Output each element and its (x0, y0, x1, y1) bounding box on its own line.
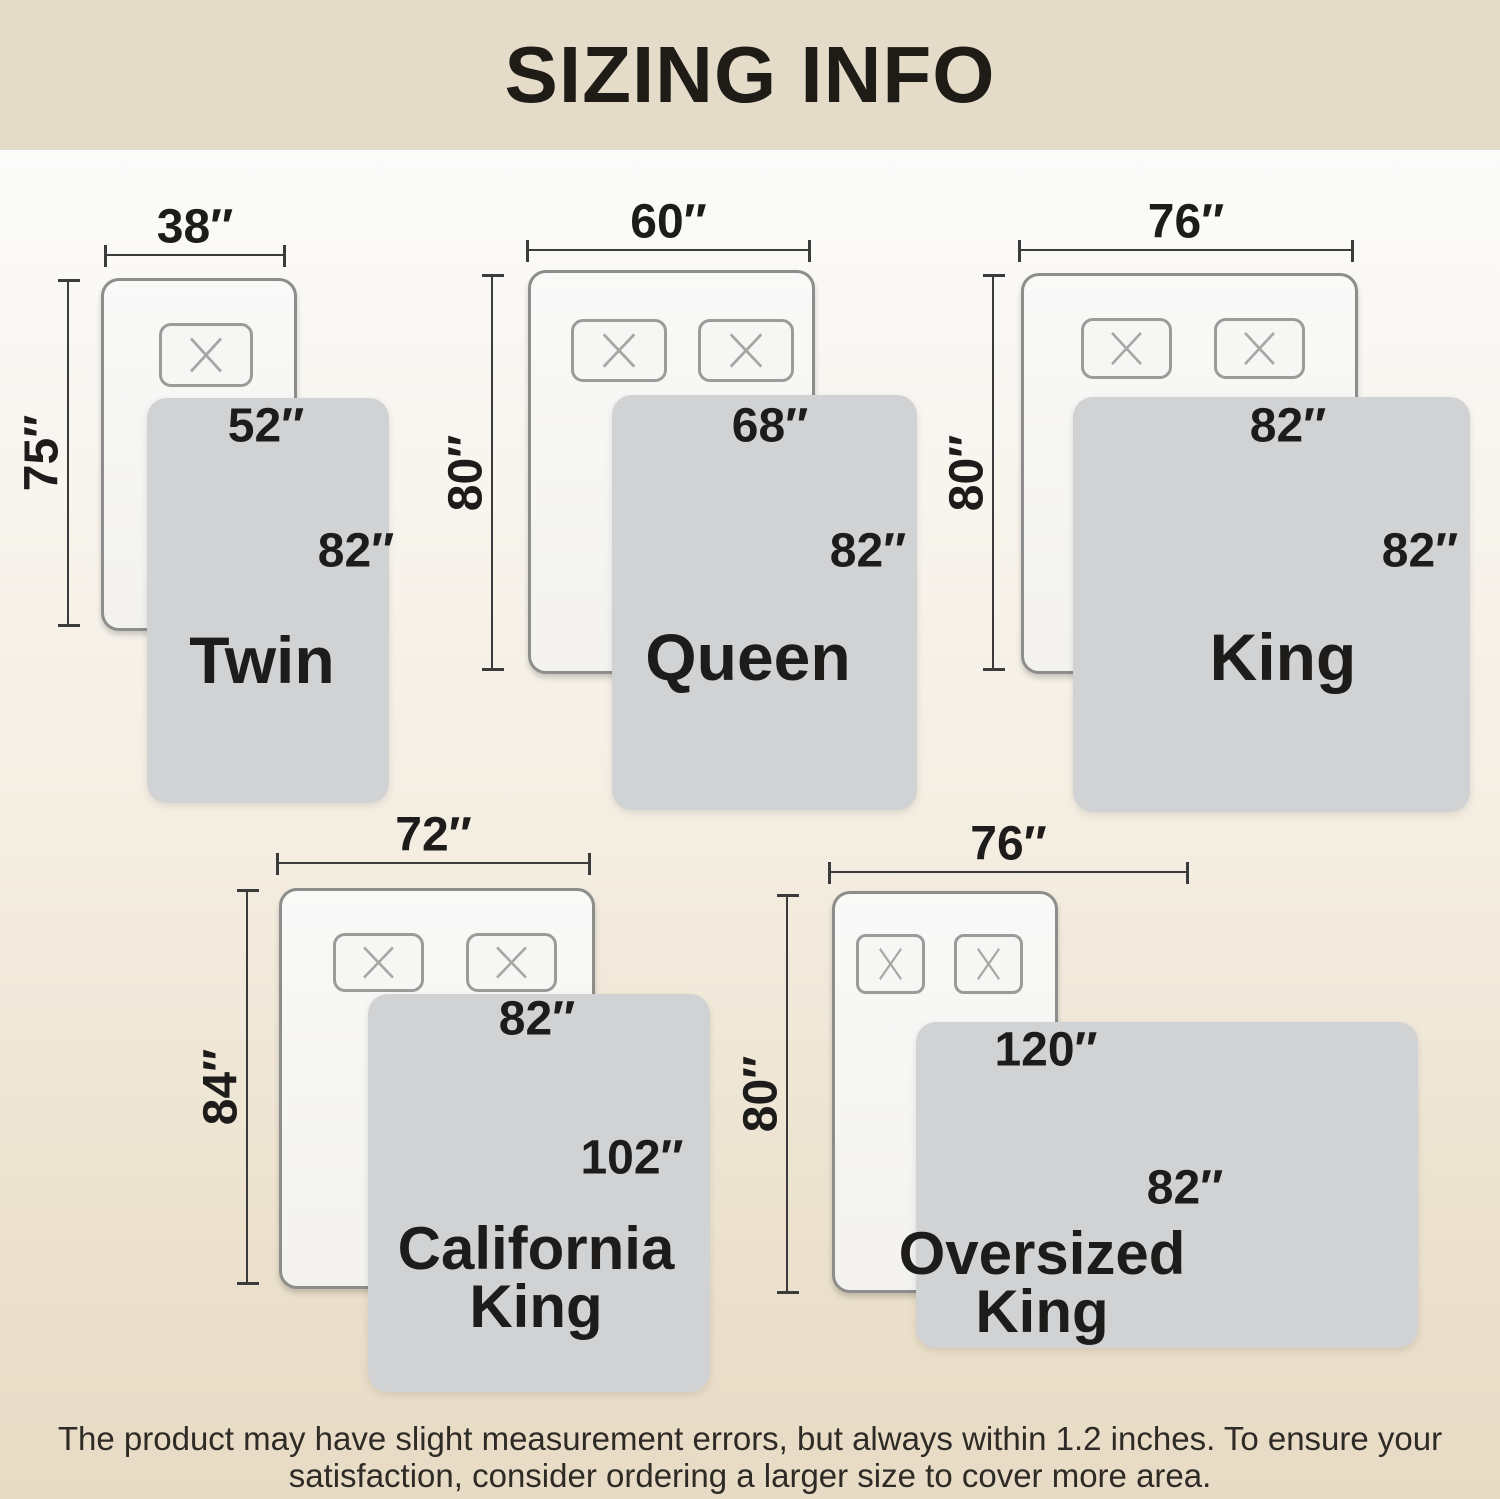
blanket-length-label: 82″ (1147, 1161, 1223, 1216)
pillow-x-icon (336, 936, 421, 989)
bed-width-label: 76″ (1148, 195, 1224, 250)
blanket-name-label: Oversized King (899, 1225, 1186, 1341)
pillow (466, 933, 557, 992)
sizing-infographic: SIZING INFO 52″ 82″ Twin 38″ 75″ (0, 0, 1500, 1499)
blanket-width-label: 68″ (732, 399, 808, 454)
height-dimension-line: 75″ (67, 280, 69, 626)
blanket-name-label: Twin (189, 622, 334, 698)
bed-length-label: 80″ (439, 434, 494, 510)
blanket-width-label: 82″ (1250, 399, 1326, 454)
blanket-length-label: 102″ (580, 1131, 683, 1186)
height-dimension-line: 80″ (786, 895, 788, 1293)
blanket-name-line2: King (899, 1283, 1186, 1341)
width-dimension-line: 76″ (829, 871, 1188, 873)
pillow-x-icon (1084, 321, 1169, 376)
pillow-x-icon (701, 322, 791, 379)
blanket-length-label: 82″ (1382, 524, 1458, 579)
blanket-name-label: California King (398, 1220, 675, 1336)
pillow-x-icon (1217, 321, 1302, 376)
blanket: 82″ 102″ California King (368, 994, 710, 1392)
height-dimension-line: 80″ (992, 275, 994, 670)
blanket-name-line2: King (398, 1278, 675, 1336)
height-dimension-line: 84″ (246, 890, 248, 1284)
pillow (571, 319, 667, 382)
pillow (159, 323, 253, 387)
page-title: SIZING INFO (505, 29, 996, 121)
bed-width-label: 38″ (157, 200, 233, 255)
footer-note-line2: satisfaction, consider ordering a larger… (0, 1457, 1500, 1494)
blanket-width-label: 120″ (994, 1023, 1097, 1078)
blanket: 68″ 82″ Queen (612, 395, 917, 810)
pillow-x-icon (574, 322, 664, 379)
bed-length-label: 75″ (15, 415, 70, 491)
blanket: 52″ 82″ Twin (147, 398, 389, 803)
footer-note-line1: The product may have slight measurement … (0, 1420, 1500, 1457)
blanket-length-label: 82″ (318, 524, 394, 579)
bed-length-label: 84″ (194, 1049, 249, 1125)
pillow (954, 934, 1023, 994)
blanket-width-label: 82″ (499, 992, 575, 1047)
pillow (856, 934, 925, 994)
width-dimension-line: 76″ (1019, 249, 1353, 251)
pillow-x-icon (469, 936, 554, 989)
blanket: 120″ 82″ Oversized King (916, 1022, 1418, 1348)
pillow (1081, 318, 1172, 379)
pillow (698, 319, 794, 382)
pillow-x-icon (162, 326, 250, 384)
pillow-x-icon (859, 937, 922, 991)
width-dimension-line: 38″ (105, 254, 285, 256)
blanket-width-label: 52″ (228, 399, 304, 454)
bed-length-label: 80″ (734, 1056, 789, 1132)
height-dimension-line: 80″ (491, 275, 493, 670)
width-dimension-line: 60″ (527, 249, 810, 251)
bed-length-label: 80″ (940, 434, 995, 510)
width-dimension-line: 72″ (277, 862, 590, 864)
blanket-name-line1: Oversized (899, 1225, 1186, 1283)
blanket-name-line1: California (398, 1220, 675, 1278)
bed-width-label: 72″ (395, 808, 471, 863)
footer-note: The product may have slight measurement … (0, 1420, 1500, 1494)
blanket-name-label: King (1210, 619, 1357, 695)
blanket-name-label: Queen (645, 619, 850, 695)
pillow (333, 933, 424, 992)
pillow (1214, 318, 1305, 379)
blanket-length-label: 82″ (830, 524, 906, 579)
bed-width-label: 76″ (970, 817, 1046, 872)
blanket: 82″ 82″ King (1073, 397, 1470, 812)
pillow-x-icon (957, 937, 1020, 991)
header-band: SIZING INFO (0, 0, 1500, 150)
bed-width-label: 60″ (630, 195, 706, 250)
